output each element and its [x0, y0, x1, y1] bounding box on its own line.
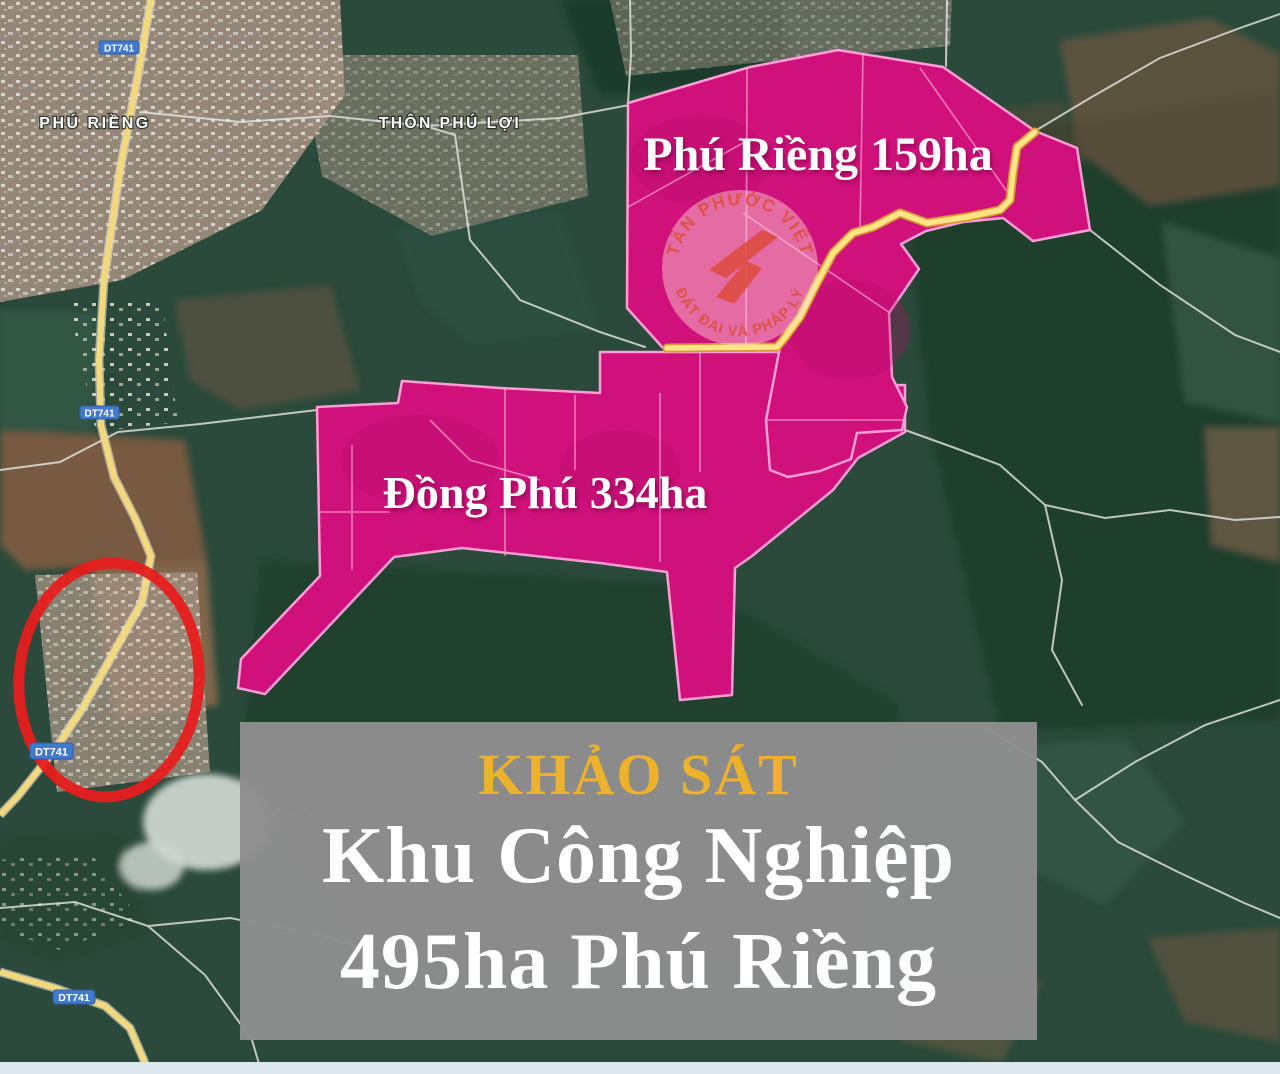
- svg-text:DT741: DT741: [58, 992, 90, 1004]
- zone-label-phu-rieng-159: Phú Riềng 159ha: [643, 128, 992, 181]
- survey-map-poster: TÂN PHƯỚC VIỆT ĐẤT ĐAI VÀ PHÁP LÝ DT741 …: [0, 0, 1280, 1074]
- bottom-strip: [0, 1062, 1280, 1074]
- road-badge-dt741: DT741: [53, 990, 95, 1004]
- caption-title: KHẢO SÁT: [478, 746, 799, 804]
- svg-text:DT741: DT741: [84, 409, 114, 420]
- watermark-stamp: TÂN PHƯỚC VIỆT ĐẤT ĐAI VÀ PHÁP LÝ: [662, 190, 818, 346]
- road-badge-dt741: DT741: [99, 41, 139, 55]
- caption-line-2: 495ha Phú Riềng: [340, 910, 937, 1016]
- place-label-thon-phu-loi: THÔN PHÚ LỢI: [379, 114, 521, 132]
- zone-label-dong-phu-334: Đồng Phú 334ha: [383, 467, 708, 518]
- caption-line-1: Khu Công Nghiệp: [322, 804, 955, 910]
- place-label-phu-rieng: PHÚ RIỀNG: [39, 113, 150, 132]
- svg-text:DT741: DT741: [104, 44, 134, 55]
- road-badge-dt741: DT741: [80, 406, 119, 420]
- caption-box: KHẢO SÁT Khu Công Nghiệp 495ha Phú Riềng: [240, 722, 1037, 1040]
- road-badge-dt741: DT741: [30, 743, 73, 759]
- svg-text:DT741: DT741: [35, 747, 68, 759]
